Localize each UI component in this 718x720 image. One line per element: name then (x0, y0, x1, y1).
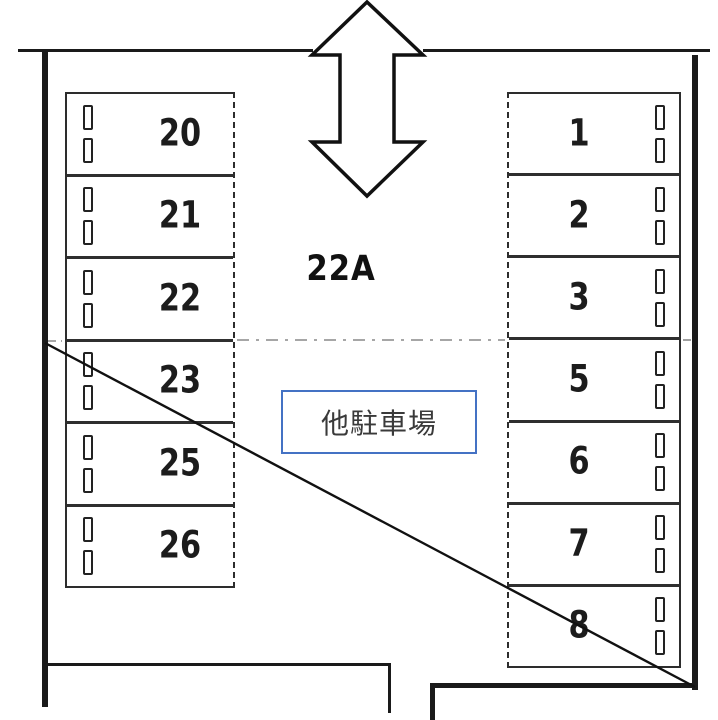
parking-space-22: 22 (67, 256, 233, 339)
wheel-stop-icon (83, 270, 93, 295)
top-wall-left-segment (18, 49, 313, 52)
parking-space-1: 1 (509, 94, 679, 173)
wheel-stop-icon (655, 138, 665, 163)
space-number: 3 (568, 275, 589, 318)
space-number: 6 (568, 440, 589, 483)
wheel-stop-icon (83, 517, 93, 542)
space-number: 1 (568, 111, 589, 154)
wheel-stops (655, 515, 665, 573)
bottom-left-wall (47, 663, 390, 666)
wheel-stop-icon (655, 548, 665, 573)
wheel-stop-icon (83, 220, 93, 245)
space-number: 7 (568, 522, 589, 565)
parking-space-6: 6 (509, 420, 679, 502)
wheel-stops (655, 105, 665, 163)
parking-space-5: 5 (509, 337, 679, 419)
wheel-stop-icon (655, 630, 665, 655)
wheel-stop-icon (655, 597, 665, 622)
wheel-stops (83, 435, 93, 493)
wheel-stops (83, 105, 93, 163)
wheel-stop-icon (655, 220, 665, 245)
wheel-stop-icon (655, 384, 665, 409)
other-parking-label: 他駐車場 (321, 402, 437, 442)
space-number: 5 (568, 358, 589, 401)
wheel-stops (655, 597, 665, 655)
other-parking-callout: 他駐車場 (281, 390, 477, 454)
top-wall-right-segment (423, 49, 710, 52)
parking-space-3: 3 (509, 255, 679, 337)
parking-space-8: 8 (509, 584, 679, 666)
right-parking-column: 1 2 3 5 6 7 8 (507, 92, 681, 668)
parking-space-2: 2 (509, 173, 679, 255)
space-number: 8 (568, 604, 589, 647)
space-number: 25 (159, 441, 201, 484)
wheel-stop-icon (655, 351, 665, 376)
wheel-stop-icon (83, 187, 93, 212)
wheel-stops (83, 187, 93, 245)
wheel-stops (655, 433, 665, 491)
wheel-stop-icon (655, 433, 665, 458)
space-number: 20 (159, 111, 201, 154)
wheel-stop-icon (83, 468, 93, 493)
wheel-stop-icon (83, 550, 93, 575)
parking-space-23: 23 (67, 339, 233, 422)
wheel-stops (655, 269, 665, 327)
parking-space-21: 21 (67, 174, 233, 257)
parking-space-7: 7 (509, 502, 679, 584)
wheel-stops (655, 187, 665, 245)
space-number: 21 (159, 194, 201, 237)
parking-lot-map: 20 21 22 23 25 26 1 2 (0, 0, 718, 720)
wheel-stop-icon (83, 138, 93, 163)
wheel-stop-icon (655, 187, 665, 212)
bottom-right-wall-corner (430, 683, 435, 720)
space-number: 23 (159, 359, 201, 402)
bottom-left-wall-corner (388, 663, 391, 713)
wheel-stops (83, 270, 93, 328)
space-number: 26 (159, 524, 201, 567)
space-number: 22 (159, 276, 201, 319)
parking-space-20: 20 (67, 94, 233, 174)
wheel-stop-icon (83, 105, 93, 130)
parking-space-26: 26 (67, 504, 233, 587)
bottom-right-wall (430, 683, 698, 688)
left-parking-column: 20 21 22 23 25 26 (65, 92, 235, 588)
wheel-stop-icon (655, 105, 665, 130)
wheel-stops (83, 352, 93, 410)
wheel-stop-icon (83, 385, 93, 410)
wheel-stop-icon (83, 303, 93, 328)
wheel-stop-icon (655, 515, 665, 540)
left-boundary-wall (42, 49, 48, 707)
wheel-stop-icon (83, 352, 93, 377)
double-vertical-arrow-icon (312, 2, 423, 196)
wheel-stops (655, 351, 665, 409)
right-boundary-wall (692, 55, 698, 690)
space-number: 2 (568, 193, 589, 236)
area-label-22a: 22A (306, 249, 375, 289)
wheel-stop-icon (83, 435, 93, 460)
wheel-stop-icon (655, 302, 665, 327)
wheel-stop-icon (655, 269, 665, 294)
wheel-stop-icon (655, 466, 665, 491)
wheel-stops (83, 517, 93, 575)
parking-space-25: 25 (67, 421, 233, 504)
